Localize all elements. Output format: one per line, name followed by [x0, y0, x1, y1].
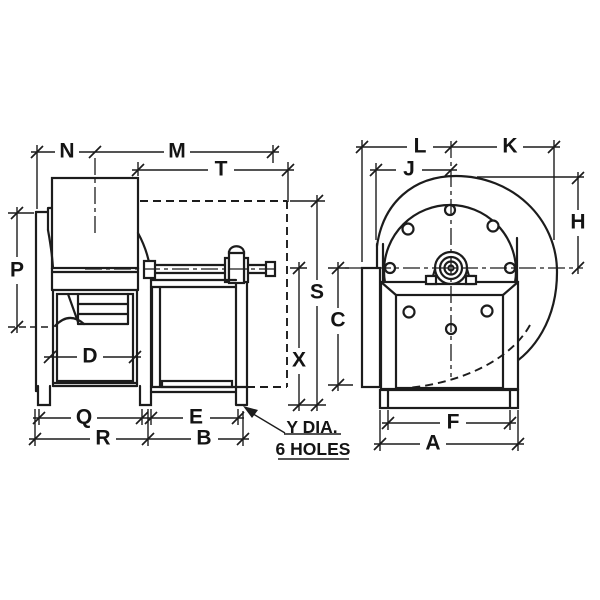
dim-X: X: [290, 262, 307, 411]
dim-Q-E: Q E: [33, 406, 244, 429]
dim-label-b: B: [196, 427, 211, 450]
scroll-band: [52, 268, 138, 290]
bearing-block: [225, 246, 248, 283]
dim-label-f: F: [447, 411, 460, 434]
dim-label-c: C: [330, 309, 345, 332]
drive-frame: [151, 280, 247, 405]
callout-line2: 6 HOLES: [276, 439, 351, 459]
dim-label-d: D: [82, 345, 97, 368]
dim-P: P: [8, 207, 53, 333]
callout-line1: Y DIA.: [286, 417, 337, 437]
dim-label-a: A: [425, 432, 440, 455]
dim-label-m: M: [168, 140, 186, 163]
dim-label-q: Q: [76, 406, 92, 429]
left-leg: [38, 386, 50, 405]
motor-envelope-hidden-line: [140, 201, 287, 387]
dim-label-n: N: [59, 140, 74, 163]
dim-label-e: E: [189, 406, 203, 429]
louver-detail: [55, 294, 128, 326]
dim-label-l: L: [414, 135, 427, 158]
dim-label-x: X: [292, 349, 306, 372]
pedestal-frame: [381, 282, 518, 389]
dim-label-r: R: [95, 427, 110, 450]
blower-dimension-drawing: N M T P D Q E R B S: [0, 0, 600, 600]
dim-S: S: [288, 195, 326, 411]
drawing-canvas: N M T P D Q E R B S: [0, 0, 600, 600]
front-view: [345, 141, 583, 408]
right-leg: [140, 386, 151, 405]
dim-label-t: T: [215, 158, 228, 181]
side-view: [36, 158, 287, 405]
base-plate: [380, 390, 518, 408]
dim-label-k: K: [502, 135, 517, 158]
dim-T: T: [132, 158, 294, 203]
dim-N-M: N M: [31, 140, 279, 210]
housing-box: [53, 233, 151, 386]
dim-F: F: [382, 410, 516, 434]
inlet-side-profile: [36, 208, 53, 391]
dim-R-B: R B: [29, 409, 249, 450]
dim-label-h: H: [570, 211, 585, 234]
inlet-bracket: [362, 268, 380, 387]
dim-label-p: P: [10, 259, 24, 282]
dim-C: C: [328, 262, 353, 391]
hole-callout: Y DIA. 6 HOLES: [243, 406, 350, 459]
dim-label-s: S: [310, 281, 324, 304]
dim-D: D: [44, 345, 141, 368]
dim-label-j: J: [403, 158, 415, 181]
